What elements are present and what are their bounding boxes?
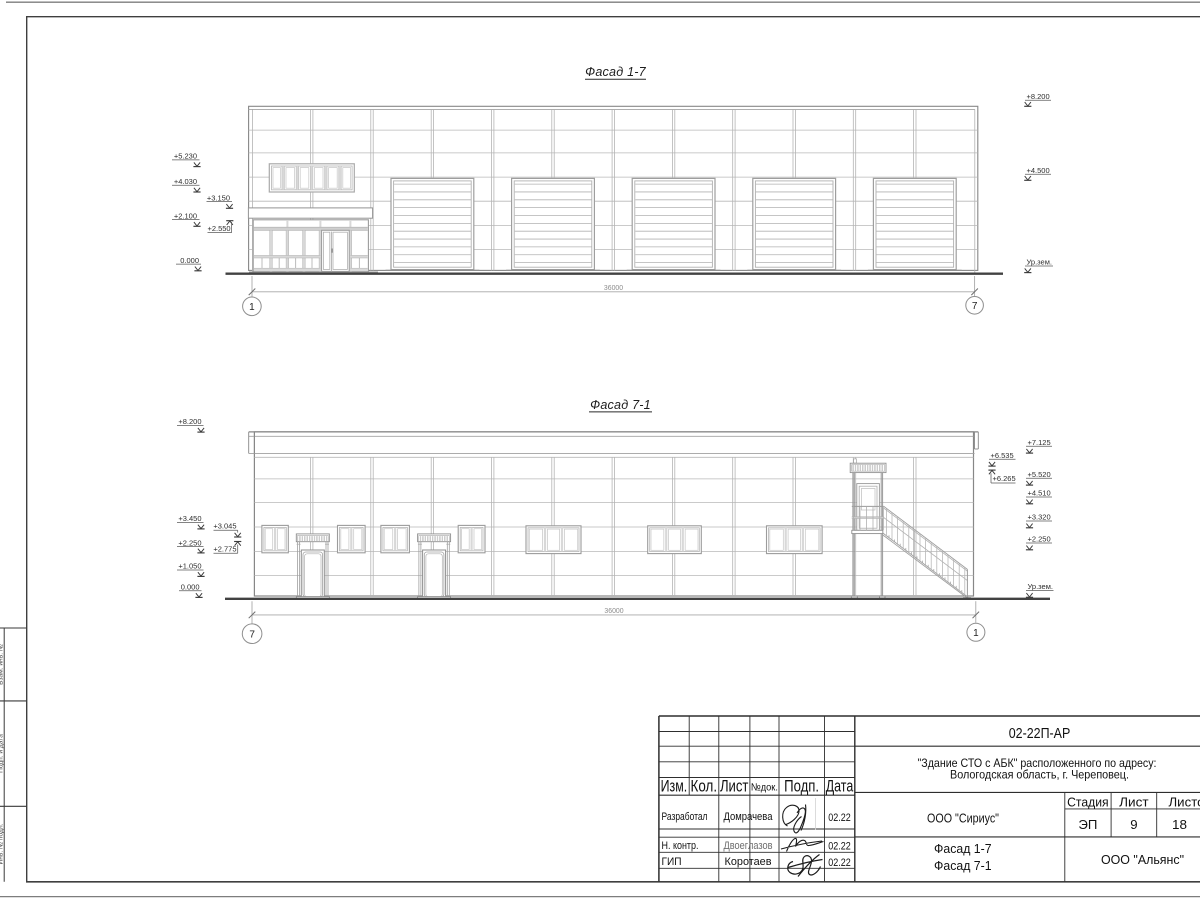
svg-text:Дата: Дата: [826, 778, 854, 796]
svg-text:36000: 36000: [604, 608, 623, 615]
svg-text:+2.250: +2.250: [178, 538, 201, 547]
svg-text:9: 9: [1130, 817, 1137, 832]
svg-text:Листов: Листов: [1169, 795, 1200, 810]
svg-text:Инв. № подл.: Инв. № подл.: [0, 823, 5, 864]
svg-text:0.000: 0.000: [181, 582, 200, 591]
svg-text:+8.200: +8.200: [1027, 92, 1050, 101]
svg-text:02.22: 02.22: [828, 841, 851, 853]
svg-text:Лист: Лист: [720, 778, 749, 796]
svg-text:+3.150: +3.150: [207, 193, 230, 202]
svg-text:+4.030: +4.030: [174, 177, 197, 186]
svg-text:Подп.: Подп.: [784, 778, 819, 796]
svg-text:Лист: Лист: [1119, 795, 1149, 810]
svg-text:7: 7: [972, 301, 978, 312]
svg-text:Кол.: Кол.: [691, 778, 718, 796]
svg-text:+4.510: +4.510: [1028, 489, 1051, 498]
svg-text:02.22: 02.22: [828, 812, 851, 824]
svg-text:Фасад 7-1: Фасад 7-1: [590, 398, 651, 412]
svg-text:ГИП: ГИП: [662, 856, 682, 868]
svg-text:Ур.зем.: Ур.зем.: [1028, 582, 1053, 591]
svg-text:+7.125: +7.125: [1028, 438, 1051, 447]
svg-text:+1.050: +1.050: [178, 562, 201, 571]
svg-text:+3.320: +3.320: [1028, 513, 1051, 522]
svg-text:1: 1: [973, 628, 979, 639]
svg-text:02-22П-АР: 02-22П-АР: [1009, 725, 1071, 742]
svg-text:Стадия: Стадия: [1067, 795, 1109, 810]
svg-text:+6.535: +6.535: [991, 451, 1014, 460]
svg-text:+4.500: +4.500: [1027, 166, 1050, 175]
svg-text:Двоеглазов: Двоеглазов: [724, 840, 773, 852]
svg-text:ЭП: ЭП: [1078, 817, 1097, 832]
svg-text:Взам. инв. №: Взам. инв. №: [0, 644, 5, 685]
svg-text:ООО "Сириус": ООО "Сириус": [927, 811, 999, 825]
svg-text:02.22: 02.22: [828, 857, 851, 869]
svg-text:Изм.: Изм.: [661, 778, 688, 796]
svg-text:Домрачева: Домрачева: [724, 811, 774, 823]
svg-text:36000: 36000: [604, 285, 623, 292]
svg-text:1: 1: [249, 302, 255, 313]
svg-text:18: 18: [1172, 817, 1187, 832]
svg-text:+5.230: +5.230: [174, 152, 197, 161]
svg-text:+2.550: +2.550: [207, 224, 230, 233]
svg-text:Фасад 7-1: Фасад 7-1: [934, 858, 992, 873]
svg-text:7: 7: [249, 630, 255, 641]
svg-text:Фасад 1-7: Фасад 1-7: [934, 841, 992, 856]
svg-text:+2.100: +2.100: [174, 211, 197, 220]
svg-text:0.000: 0.000: [180, 256, 199, 265]
svg-text:+2.775: +2.775: [213, 544, 236, 553]
svg-text:Разработал: Разработал: [662, 811, 708, 823]
svg-text:Подп. и дата: Подп. и дата: [0, 734, 5, 773]
svg-text:№док.: №док.: [751, 782, 778, 794]
svg-text:ООО "Альянс": ООО "Альянс": [1101, 852, 1184, 867]
svg-text:+3.045: +3.045: [213, 521, 236, 530]
svg-text:Фасад 1-7: Фасад 1-7: [585, 65, 647, 79]
svg-text:Н. контр.: Н. контр.: [662, 840, 699, 852]
svg-text:Ур.зем.: Ур.зем.: [1027, 257, 1052, 266]
svg-text:Коротаев: Коротаев: [725, 856, 772, 868]
svg-text:+5.520: +5.520: [1028, 470, 1051, 479]
svg-text:+3.450: +3.450: [178, 514, 201, 523]
svg-text:Вологодская область, г. Черепо: Вологодская область, г. Череповец.: [950, 768, 1129, 782]
svg-text:+2.250: +2.250: [1028, 535, 1051, 544]
svg-text:+6.265: +6.265: [993, 474, 1016, 483]
svg-text:+8.200: +8.200: [178, 417, 201, 426]
